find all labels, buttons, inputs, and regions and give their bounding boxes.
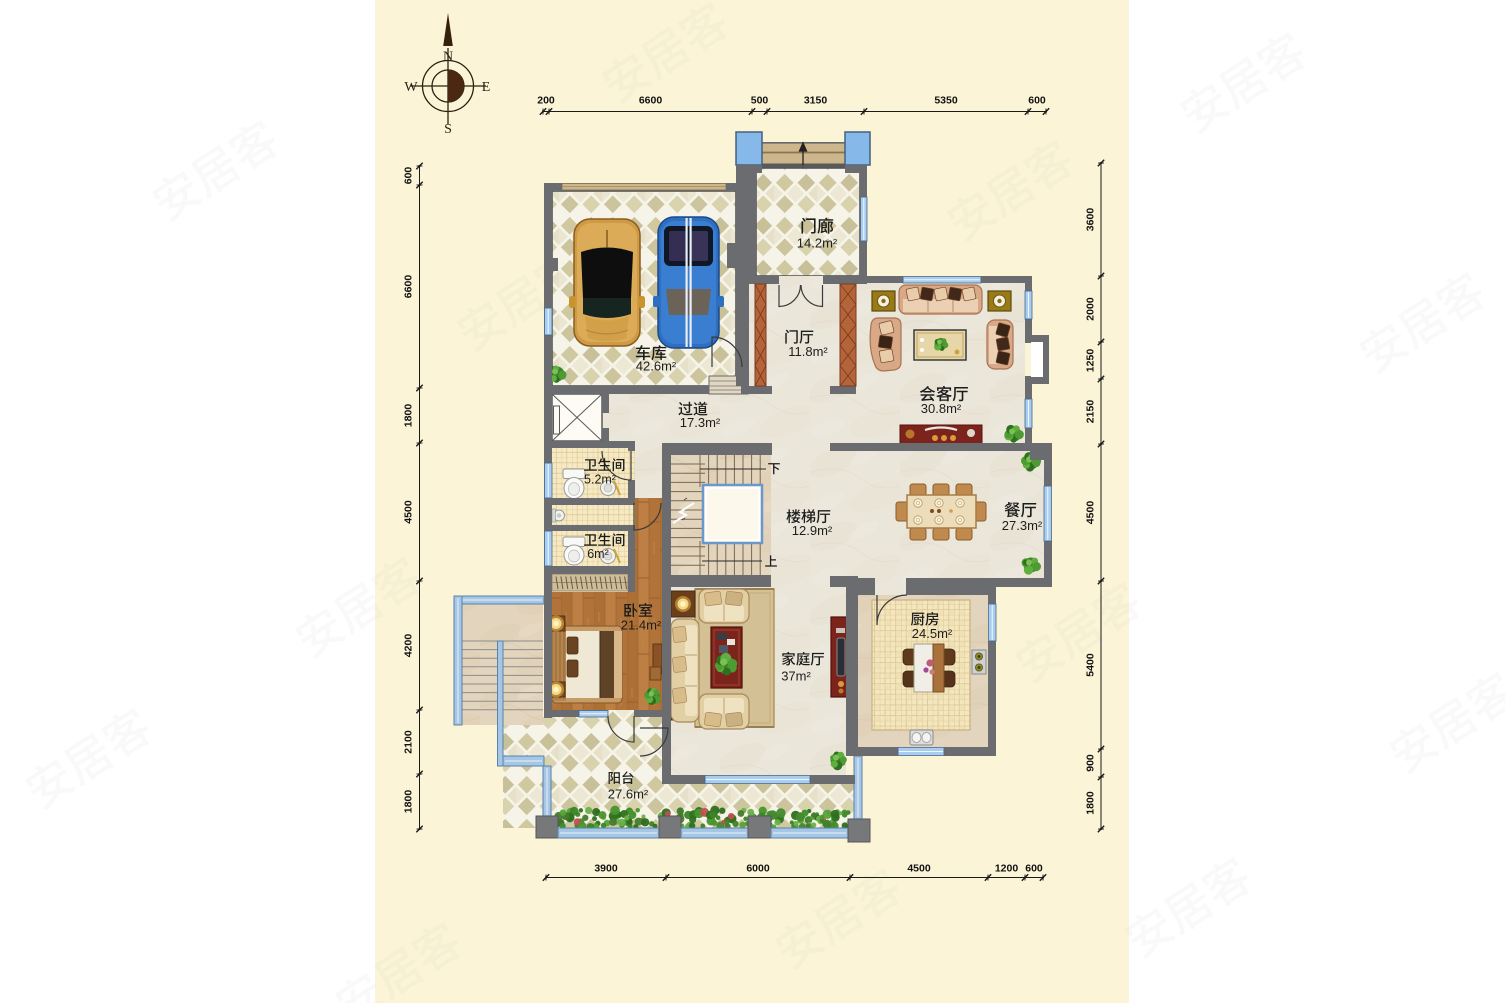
svg-text:900: 900 bbox=[1085, 754, 1097, 772]
svg-text:6600: 6600 bbox=[639, 95, 663, 107]
svg-text:1800: 1800 bbox=[1085, 791, 1097, 815]
svg-text:27.3m²: 27.3m² bbox=[1002, 518, 1043, 533]
svg-text:4500: 4500 bbox=[1085, 501, 1097, 525]
svg-text:11.8m²: 11.8m² bbox=[788, 344, 828, 359]
svg-text:1250: 1250 bbox=[1085, 349, 1097, 373]
svg-text:14.2m²: 14.2m² bbox=[797, 236, 838, 251]
svg-text:1200: 1200 bbox=[995, 863, 1019, 875]
svg-text:5350: 5350 bbox=[934, 95, 958, 107]
svg-text:37m²: 37m² bbox=[781, 669, 811, 684]
svg-text:24.5m²: 24.5m² bbox=[912, 626, 953, 641]
svg-text:N: N bbox=[443, 49, 453, 64]
svg-text:27.6m²: 27.6m² bbox=[608, 787, 649, 802]
svg-text:500: 500 bbox=[751, 95, 769, 107]
svg-text:4500: 4500 bbox=[907, 863, 931, 875]
svg-text:600: 600 bbox=[1025, 863, 1043, 875]
svg-text:30.8m²: 30.8m² bbox=[921, 401, 962, 416]
svg-text:2100: 2100 bbox=[403, 730, 415, 754]
svg-text:200: 200 bbox=[537, 95, 555, 107]
svg-text:17.3m²: 17.3m² bbox=[680, 415, 721, 430]
svg-text:12.9m²: 12.9m² bbox=[792, 523, 833, 538]
svg-text:3150: 3150 bbox=[804, 95, 828, 107]
svg-text:5.2m²: 5.2m² bbox=[584, 472, 616, 486]
svg-text:E: E bbox=[482, 80, 491, 95]
svg-text:2000: 2000 bbox=[1085, 297, 1097, 321]
svg-text:1800: 1800 bbox=[403, 790, 415, 814]
svg-text:6600: 6600 bbox=[403, 275, 415, 299]
svg-text:S: S bbox=[444, 122, 452, 137]
svg-text:600: 600 bbox=[403, 167, 415, 185]
svg-text:5400: 5400 bbox=[1085, 653, 1097, 677]
svg-text:600: 600 bbox=[1028, 95, 1046, 107]
svg-text:21.4m²: 21.4m² bbox=[621, 618, 662, 633]
svg-text:2150: 2150 bbox=[1085, 400, 1097, 424]
svg-text:4200: 4200 bbox=[403, 634, 415, 658]
svg-text:6000: 6000 bbox=[746, 863, 770, 875]
svg-text:1800: 1800 bbox=[403, 404, 415, 428]
svg-text:4500: 4500 bbox=[403, 500, 415, 524]
svg-text:3900: 3900 bbox=[594, 863, 618, 875]
svg-text:W: W bbox=[404, 80, 418, 95]
svg-text:3600: 3600 bbox=[1085, 208, 1097, 232]
svg-text:42.6m²: 42.6m² bbox=[636, 359, 677, 374]
svg-text:6m²: 6m² bbox=[587, 547, 609, 561]
